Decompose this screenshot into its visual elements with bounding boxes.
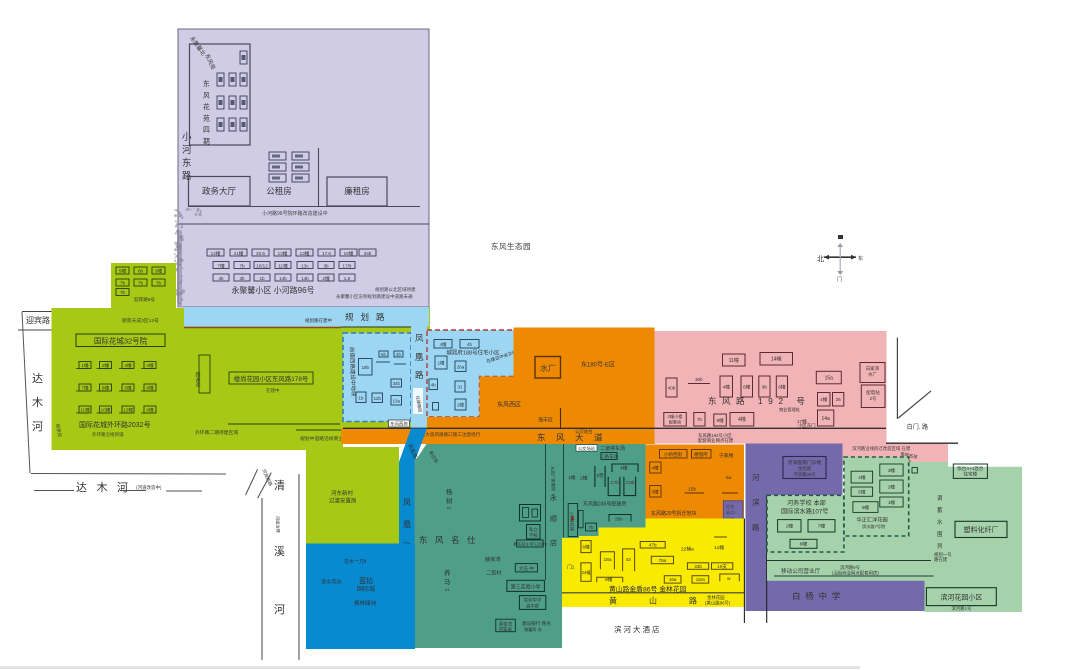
svg-text:3b: 3b <box>239 276 245 281</box>
svg-text:木: 木 <box>32 396 43 409</box>
svg-text:7b: 7b <box>120 290 126 295</box>
svg-text:二街村: 二街村 <box>486 569 502 577</box>
svg-text:4b: 4b <box>467 342 472 347</box>
svg-text:6b: 6b <box>138 269 144 274</box>
svg-text:薛家湾: 薛家湾 <box>485 555 501 563</box>
svg-text:河: 河 <box>752 473 760 482</box>
svg-text:规划路以北区域待建: 规划路以北区域待建 <box>375 286 416 293</box>
svg-text:17.6: 17.6 <box>322 251 331 256</box>
svg-text:47b: 47b <box>649 543 657 548</box>
svg-text:18a: 18a <box>604 557 612 563</box>
svg-text:规划路: 规划路 <box>345 312 392 322</box>
svg-text:配电站: 配电站 <box>194 372 202 387</box>
svg-text:华正汇洋花园: 华正汇洋花园 <box>857 516 888 524</box>
svg-text:在建中: 在建中 <box>266 387 280 394</box>
svg-text:78a: 78a <box>659 558 667 563</box>
svg-text:26a: 26a <box>457 364 465 369</box>
svg-text:国际城: 国际城 <box>357 585 375 593</box>
svg-text:店: 店 <box>550 538 557 547</box>
svg-text:东: 东 <box>858 255 863 262</box>
svg-text:17/9: 17/9 <box>343 263 352 268</box>
svg-text:第三实验小学: 第三实验小学 <box>511 583 541 590</box>
svg-text:13幢: 13幢 <box>300 250 310 257</box>
svg-text:东风西苑: 东风西苑 <box>390 421 408 428</box>
svg-text:丽景天成3区12号: 丽景天成3区12号 <box>122 317 159 324</box>
svg-text:6幢: 6幢 <box>582 543 590 550</box>
svg-text:1幢: 1幢 <box>438 360 445 367</box>
svg-text:4幢: 4幢 <box>651 465 659 472</box>
svg-text:蓝钻: 蓝钻 <box>359 576 373 585</box>
svg-text:1.6: 1.6 <box>344 276 351 281</box>
svg-text:40b: 40b <box>668 385 676 390</box>
svg-text:3幢: 3幢 <box>155 268 163 275</box>
svg-text:滨河花园小区: 滨河花园小区 <box>940 593 982 602</box>
svg-text:水厂: 水厂 <box>868 371 877 378</box>
svg-text:东风路20号拆迁地块: 东风路20号拆迁地块 <box>651 510 697 517</box>
svg-text:高中部: 高中部 <box>526 602 540 609</box>
svg-text:苑13: 苑13 <box>726 509 736 516</box>
svg-text:建设银行 网点: 建设银行 网点 <box>522 620 551 627</box>
svg-text:河: 河 <box>274 603 285 616</box>
svg-text:县实验小学1200m: 县实验小学1200m <box>513 541 547 548</box>
svg-text:永聚馨小区东侧规划路建设中道路未通: 永聚馨小区东侧规划路建设中道路未通 <box>336 293 413 300</box>
svg-text:凰: 凰 <box>415 352 424 362</box>
svg-text:马: 马 <box>444 578 451 586</box>
svg-text:水厂: 水厂 <box>540 363 556 373</box>
svg-text:4幢: 4幢 <box>820 396 828 403</box>
svg-text:过渡安置房: 过渡安置房 <box>329 497 357 505</box>
svg-text:5幢: 5幢 <box>858 488 866 495</box>
svg-text:凰: 凰 <box>403 520 411 529</box>
svg-text:34b: 34b <box>364 251 372 256</box>
svg-text:在水一方Ⅱ: 在水一方Ⅱ <box>344 558 366 565</box>
svg-text:小: 小 <box>182 132 192 143</box>
svg-text:4幢: 4幢 <box>738 416 746 423</box>
svg-text:公租房: 公租房 <box>266 186 292 196</box>
svg-text:28b: 28b <box>615 517 623 522</box>
svg-text:8幢: 8幢 <box>743 383 751 390</box>
svg-text:9b: 9b <box>762 384 768 389</box>
svg-text:路: 路 <box>415 370 424 380</box>
svg-text:达木河: 达木河 <box>76 481 138 494</box>
svg-text:C8b: C8b <box>626 480 635 485</box>
svg-text:7幢: 7幢 <box>818 523 826 530</box>
svg-text:凤: 凤 <box>403 498 411 507</box>
svg-text:4b: 4b <box>218 276 224 281</box>
svg-text:8幢: 8幢 <box>800 541 808 548</box>
svg-text:12b: 12b <box>374 396 382 401</box>
svg-text:住宅楼: 住宅楼 <box>963 471 977 478</box>
svg-text:4幢: 4幢 <box>858 474 866 481</box>
svg-text:1b: 1b <box>259 276 265 281</box>
svg-text:4幢: 4幢 <box>620 465 628 472</box>
svg-text:6b: 6b <box>381 352 386 357</box>
svg-text:13幢: 13幢 <box>278 250 288 257</box>
svg-text:达: 达 <box>32 372 43 385</box>
svg-text:东风大道: 东风大道 <box>537 433 613 443</box>
svg-text:储蓄所 东: 储蓄所 东 <box>524 626 542 633</box>
svg-text:围: 围 <box>937 531 942 538</box>
svg-text:河务学校 本部: 河务学校 本部 <box>787 499 826 507</box>
svg-text:22辅a: 22辅a <box>681 546 694 553</box>
svg-text:公交场站: 公交场站 <box>578 445 595 452</box>
svg-text:小河路96号院环路改造建设中: 小河路96号院环路改造建设中 <box>262 210 328 217</box>
svg-text:3幢: 3幢 <box>888 467 896 474</box>
svg-text:迎宾路8号: 迎宾路8号 <box>134 296 155 303</box>
svg-text:19b: 19b <box>362 365 370 370</box>
svg-text:私立: 私立 <box>529 526 538 533</box>
svg-text:河: 河 <box>32 420 43 433</box>
svg-text:110a: 110a <box>696 577 706 582</box>
svg-text:枫林绿洲: 枫林绿洲 <box>354 599 377 607</box>
svg-text:16幢: 16幢 <box>344 250 354 257</box>
svg-text:6a: 6a <box>726 475 732 481</box>
svg-text:(河道改造中): (河道改造中) <box>136 484 162 491</box>
svg-text:b4: b4 <box>445 587 450 592</box>
svg-text:列: 列 <box>937 542 942 550</box>
svg-text:9幢: 9幢 <box>605 576 613 583</box>
svg-text:路在建: 路在建 <box>934 556 948 563</box>
svg-text:白家湾: 白家湾 <box>866 365 880 372</box>
svg-text:东风路 192 号: 东风路 192 号 <box>708 396 810 406</box>
svg-text:国际滨水路107号: 国际滨水路107号 <box>781 508 828 516</box>
svg-text:滨: 滨 <box>752 497 760 507</box>
svg-text:1幢: 1幢 <box>888 499 896 506</box>
svg-text:凤: 凤 <box>415 333 424 343</box>
svg-text:水: 水 <box>937 518 943 526</box>
svg-text:杨: 杨 <box>446 487 453 496</box>
svg-text:迎宾路: 迎宾路 <box>26 315 50 325</box>
svg-text:溪: 溪 <box>274 545 285 558</box>
svg-text:14b: 14b <box>301 276 309 281</box>
svg-text:7b: 7b <box>156 281 162 286</box>
svg-text:7b: 7b <box>588 525 594 530</box>
svg-text:w: w <box>727 577 731 582</box>
svg-text:河: 河 <box>182 144 192 156</box>
svg-text:东180号-E区: 东180号-E区 <box>581 361 615 369</box>
svg-text:风: 风 <box>203 92 210 100</box>
svg-text:东风名仕: 东风名仕 <box>419 535 483 545</box>
svg-text:(沿街商业网点配套用房): (沿街商业网点配套用房) <box>832 570 879 577</box>
svg-text:20.6: 20.6 <box>256 251 265 256</box>
svg-text:31: 31 <box>458 385 463 390</box>
svg-text:蓄: 蓄 <box>937 506 943 514</box>
svg-text:东风路246号配建房: 东风路246号配建房 <box>583 501 626 508</box>
svg-text:16a: 16a <box>669 577 677 582</box>
svg-text:国际花城32号院: 国际花城32号院 <box>94 336 148 346</box>
svg-text:13a: 13a <box>393 398 401 403</box>
svg-text:4b: 4b <box>431 382 436 387</box>
svg-text:11幢: 11幢 <box>714 544 724 551</box>
svg-text:C7b: C7b <box>611 480 620 485</box>
svg-text:滨水湾3b: 滨水湾3b <box>321 579 342 586</box>
svg-text:4幢: 4幢 <box>440 341 447 348</box>
svg-text:门: 门 <box>837 276 842 283</box>
svg-text:物业管理处: 物业管理处 <box>779 406 801 413</box>
svg-text:白门. 路: 白门. 路 <box>907 423 928 431</box>
svg-text:河滨路28号: 河滨路28号 <box>793 471 816 478</box>
svg-text:2幢: 2幢 <box>457 402 464 409</box>
svg-text:配套房: 配套房 <box>669 419 682 426</box>
svg-text:滨水路7号院: 滨水路7号院 <box>862 523 886 530</box>
svg-text:门1: 门1 <box>567 564 575 571</box>
svg-text:1幢: 1幢 <box>568 474 576 481</box>
svg-text:二道停车场: 二道停车场 <box>600 445 625 452</box>
svg-text:外环路二期待建区域: 外环路二期待建区域 <box>195 429 238 436</box>
svg-text:东: 东 <box>203 79 210 88</box>
svg-text:东风西区: 东风西区 <box>497 401 521 409</box>
svg-text:北: 北 <box>817 255 824 263</box>
svg-text:东风大道凤凰路口施工注意绕行: 东风大道凤凰路口施工注意绕行 <box>416 431 481 438</box>
svg-text:11幢: 11幢 <box>278 262 288 269</box>
svg-text:恒金: 恒金 <box>726 503 735 510</box>
svg-text:政务大厅: 政务大厅 <box>202 186 237 196</box>
svg-text:(黄山路86号): (黄山路86号) <box>705 600 731 607</box>
svg-text:34b: 34b <box>393 381 401 386</box>
svg-text:配套商业网点在建: 配套商业网点在建 <box>698 437 734 444</box>
svg-text:43: 43 <box>626 557 632 563</box>
svg-text:村委会: 村委会 <box>499 626 513 633</box>
svg-text:7b: 7b <box>120 281 126 286</box>
svg-text:14a: 14a <box>821 416 830 422</box>
svg-text:15a: 15a <box>825 375 834 381</box>
svg-text:4幢: 4幢 <box>723 383 731 390</box>
svg-text:12幢: 12幢 <box>211 250 221 257</box>
svg-text:国际花城外环路2032号: 国际花城外环路2032号 <box>79 420 151 429</box>
svg-text:学校: 学校 <box>529 532 538 539</box>
svg-text:8营: 8营 <box>597 472 605 479</box>
svg-text:3b: 3b <box>323 263 329 268</box>
svg-text:期: 期 <box>203 138 210 146</box>
svg-text:滨河路1号: 滨河路1号 <box>951 605 972 612</box>
svg-text:公交站台: 公交站台 <box>575 428 593 435</box>
svg-text:树: 树 <box>446 496 453 505</box>
svg-text:白杨中学: 白杨中学 <box>792 591 845 601</box>
svg-text:塑料化纤厂: 塑料化纤厂 <box>964 525 999 534</box>
svg-text:住院部: 住院部 <box>798 465 812 472</box>
svg-text:东: 东 <box>182 157 192 169</box>
svg-text:楼尚花园小区东风路178号: 楼尚花园小区东风路178号 <box>234 374 309 383</box>
svg-text:规划路在建中: 规划路在建中 <box>305 317 332 324</box>
svg-text:7b: 7b <box>239 263 245 268</box>
svg-text:15b: 15b <box>688 487 696 493</box>
svg-text:养: 养 <box>444 568 451 577</box>
svg-text:四: 四 <box>203 126 210 134</box>
svg-text:东风生态园: 东风生态园 <box>491 241 531 251</box>
svg-text:永: 永 <box>550 493 557 502</box>
svg-text:3幢: 3幢 <box>651 489 659 496</box>
svg-text:b2: b2 <box>447 506 451 510</box>
svg-text:1b: 1b <box>359 395 364 400</box>
svg-text:14b: 14b <box>279 276 287 281</box>
svg-text:滨河大酒店: 滨河大酒店 <box>614 624 662 634</box>
svg-text:小桥西街: 小桥西街 <box>664 451 683 458</box>
svg-text:10/12: 10/12 <box>256 263 268 268</box>
svg-text:6幢: 6幢 <box>778 383 786 390</box>
svg-text:19支: 19支 <box>717 563 727 570</box>
svg-text:外环路沿线商铺: 外环路沿线商铺 <box>92 431 124 438</box>
svg-text:海丰区: 海丰区 <box>538 417 553 424</box>
svg-text:调: 调 <box>937 494 942 502</box>
svg-text:城熙府188号住宅小区: 城熙府188号住宅小区 <box>446 349 500 357</box>
svg-text:顺: 顺 <box>550 515 557 523</box>
svg-text:于家楼: 于家楼 <box>719 452 734 459</box>
svg-text:2幢: 2幢 <box>322 275 330 282</box>
svg-text:河滨医院门诊楼: 河滨医院门诊楼 <box>788 459 822 466</box>
svg-text:11幢: 11幢 <box>729 357 739 364</box>
svg-text:苑: 苑 <box>203 114 210 123</box>
svg-text:6幢: 6幢 <box>862 504 870 511</box>
svg-text:黄山路金盾86号 金林花园: 黄山路金盾86号 金林花园 <box>609 585 687 594</box>
svg-text:14幢: 14幢 <box>771 356 782 363</box>
svg-text:7b: 7b <box>697 417 703 422</box>
svg-text:花: 花 <box>203 102 210 111</box>
svg-text:26: 26 <box>836 397 842 402</box>
svg-text:7幢: 7幢 <box>217 262 225 269</box>
svg-text:2幢: 2幢 <box>888 483 896 490</box>
svg-text:配电站: 配电站 <box>866 389 880 396</box>
svg-text:9幢: 9幢 <box>716 417 724 424</box>
svg-text:1幢: 1幢 <box>786 523 794 530</box>
svg-text:33b: 33b <box>694 564 702 569</box>
svg-text:30b: 30b <box>695 377 703 382</box>
svg-text:永聚馨小区 小河路96号: 永聚馨小区 小河路96号 <box>231 285 314 295</box>
svg-text:二路车场: 二路车场 <box>600 453 619 460</box>
svg-text:2幢: 2幢 <box>580 475 588 482</box>
svg-text:路: 路 <box>752 522 760 532</box>
svg-text:5幢: 5幢 <box>119 268 127 275</box>
svg-text:21幢: 21幢 <box>234 250 244 257</box>
svg-text:清: 清 <box>274 479 285 492</box>
svg-text:7b: 7b <box>138 281 144 286</box>
svg-text:24幢: 24幢 <box>582 569 592 576</box>
svg-text:廉租房: 廉租房 <box>344 186 370 196</box>
svg-text:4b: 4b <box>396 352 401 357</box>
svg-text:河东新村: 河东新村 <box>331 489 354 497</box>
svg-text:13c: 13c <box>301 263 309 268</box>
svg-text:移动公司营业厅: 移动公司营业厅 <box>781 567 821 575</box>
svg-text:楼管所: 楼管所 <box>694 451 708 458</box>
svg-text:大石-中: 大石-中 <box>519 565 535 572</box>
